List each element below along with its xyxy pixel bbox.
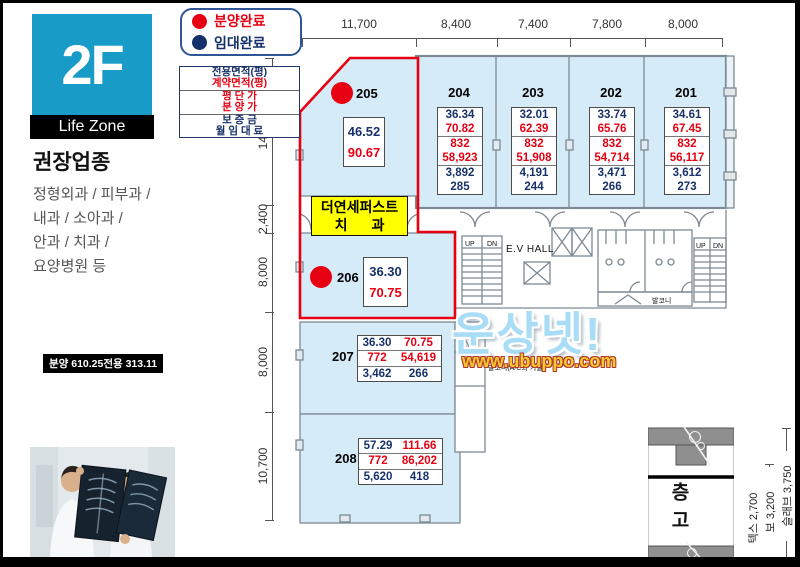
leased-dot-icon (192, 35, 207, 50)
page-frame (0, 0, 800, 3)
recommend-line: 안과 / 치과 / (33, 231, 150, 255)
unit-201-label: 201 (664, 85, 708, 100)
recommend-line: 요양병원 등 (33, 255, 150, 279)
recommend-line: 정형외과 / 피부과 / (33, 183, 150, 207)
unit-202-label: 202 (589, 85, 633, 100)
unit-206-label: 206 (337, 270, 359, 285)
flyer-page: 2F Life Zone 권장업종 정형외과 / 피부과 / 내과 / 소아과 … (0, 0, 800, 567)
recommend-title: 권장업종 (33, 146, 110, 176)
unit-203-pricing: 32.01 62.39 832 51,908 4,191 244 (511, 107, 557, 195)
unit-204-pricing: 36.34 70.82 832 58,923 3,892 285 (437, 107, 483, 195)
dim-top: 7,400 (498, 17, 568, 31)
unit-206-pricing: 36.30 70.75 (363, 257, 408, 307)
legend-sold: 분양완료 (192, 11, 300, 31)
stair-dn-label: DN (487, 241, 497, 248)
unit-207-label: 207 (332, 349, 354, 364)
unit-206-sold-dot-icon (310, 266, 332, 288)
tenant-box: 더연세퍼스트 치 과 (311, 196, 408, 236)
balcony-label: 발코니 (652, 296, 671, 305)
legend-leased: 임대완료 (192, 33, 300, 53)
dim-left: 8,000 (256, 322, 270, 402)
page-frame (795, 0, 800, 567)
zone-label: Life Zone (30, 115, 154, 139)
stair-up-label: UP (696, 243, 706, 250)
ceiling-dim: 텍스 2,700 (745, 473, 759, 563)
unit-205-sold-dot-icon (331, 82, 353, 104)
area-summary: 분양 610.25전용 313.11 (43, 354, 163, 373)
unit-204-label: 204 (437, 85, 481, 100)
ev-hall-label: E.V HALL (506, 244, 554, 255)
ceiling-height-title: 층고 (662, 482, 692, 538)
page-frame (0, 557, 800, 567)
recommend-line: 내과 / 소아과 / (33, 207, 150, 231)
unit-208-pricing: 57.29 111.66 772 86,202 5,620 418 (358, 438, 443, 485)
recommend-list: 정형외과 / 피부과 / 내과 / 소아과 / 안과 / 치과 / 요양병원 등 (33, 183, 150, 279)
restroom-icon (598, 230, 692, 292)
dim-top: 7,800 (572, 17, 642, 31)
dim-left: 8,000 (256, 232, 270, 312)
price-legend-row: 월 임 대 료 (180, 126, 299, 137)
unit-203-label: 203 (511, 85, 555, 100)
status-legend: 분양완료 임대완료 (180, 8, 302, 56)
ceiling-dim: 보 3,200 (762, 467, 776, 557)
watermark-url: www.ubuppo.com (462, 351, 616, 372)
dim-top: 8,000 (648, 17, 718, 31)
dim-top: 11,700 (324, 17, 394, 31)
price-legend: 전용면적(평) 계약면적(평) 평 단 가 분 양 가 보 증 금 월 임 대 … (179, 66, 300, 138)
price-legend-row: 계약면적(평) (180, 78, 299, 89)
price-legend-row: 분 양 가 (180, 102, 299, 113)
stair-up-label: UP (465, 241, 475, 248)
unit-205-label: 205 (356, 86, 378, 101)
elevator-icon (524, 228, 592, 284)
tenant-name-line1: 더연세퍼스트 (312, 198, 407, 216)
unit-202-pricing: 33.74 65.76 832 54,714 3,471 266 (589, 107, 635, 195)
dimension-line-top (302, 38, 722, 39)
dim-top: 8,400 (421, 17, 491, 31)
unit-205-pricing: 46.52 90.67 (343, 117, 385, 167)
unit-201-pricing: 34.61 67.45 832 56,117 3,612 273 (664, 107, 710, 195)
doctors-xray-photo (30, 447, 175, 558)
floor-label: 2F (61, 32, 122, 97)
page-frame (0, 0, 3, 567)
stair-dn-label: DN (713, 243, 723, 250)
unit-208-label: 208 (335, 451, 357, 466)
tenant-name-line2: 치 과 (312, 216, 407, 234)
ceiling-dim: 슬래브 3,750 (779, 451, 793, 541)
unit-207-pricing: 36.30 70.75 772 54,619 3,462 266 (357, 335, 442, 382)
dim-left: 10,700 (256, 426, 270, 506)
sold-dot-icon (192, 14, 207, 29)
leased-label: 임대완료 (214, 33, 266, 53)
sold-label: 분양완료 (214, 11, 266, 31)
floor-badge: 2F (32, 14, 152, 115)
